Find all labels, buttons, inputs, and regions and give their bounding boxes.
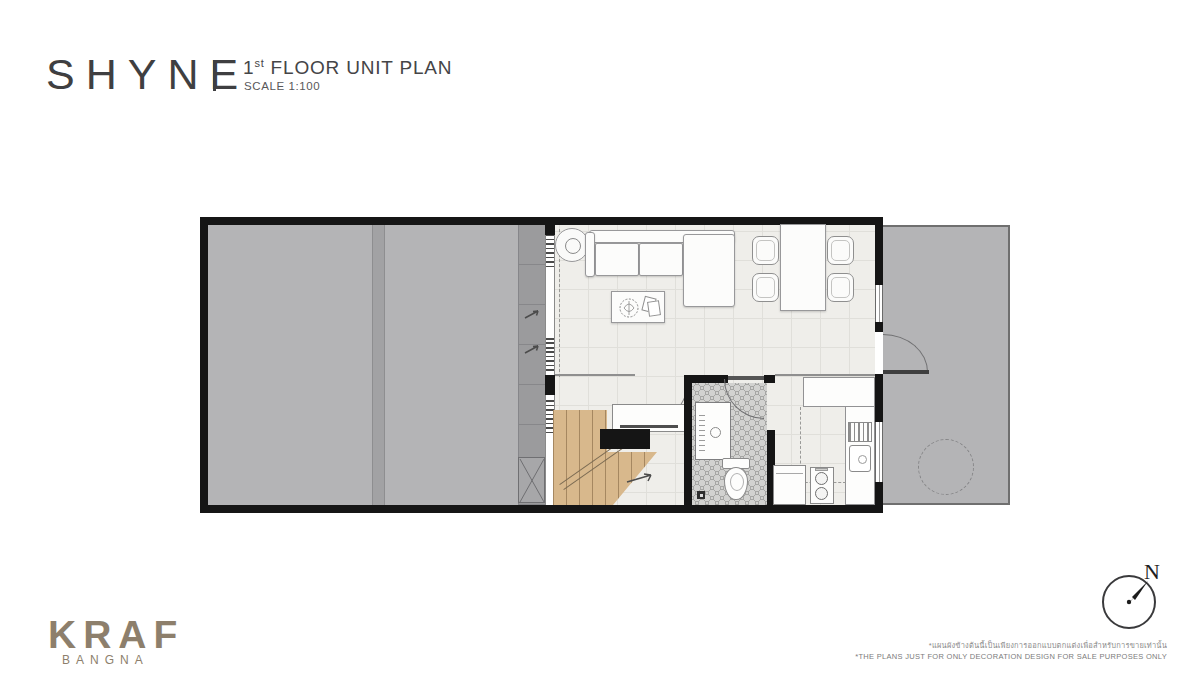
driveway-joint xyxy=(372,225,385,505)
bathroom-wall-left xyxy=(684,375,692,505)
stove-burner xyxy=(815,472,828,485)
bathroom-wall-top xyxy=(764,375,775,383)
table-book xyxy=(647,300,661,317)
disclaimer-english: *THE PLANS JUST FOR ONLY DECORATION DESI… xyxy=(855,652,1167,663)
sofa-cushion xyxy=(595,243,639,276)
window-right-upper xyxy=(875,285,883,322)
wall-right-segment xyxy=(875,374,883,422)
kitchen-counter-top xyxy=(803,377,875,407)
tree-dashed-circle xyxy=(918,439,974,495)
dining-chair xyxy=(752,273,779,302)
dining-chair xyxy=(752,236,779,265)
plan-title: 1st FLOOR UNIT PLAN xyxy=(243,57,452,79)
dining-table xyxy=(780,224,826,311)
slide-canvas: SHYNE 1st FLOOR UNIT PLAN SCALE 1:100 xyxy=(0,0,1200,686)
stair-wall-block xyxy=(600,429,650,449)
window-right-lower xyxy=(875,422,883,482)
disclaimer: *แผนผังข้างต้นนี้เป็นเพียงการออกแบบตกแต่… xyxy=(855,641,1167,663)
floor-lamp xyxy=(555,228,589,262)
refrigerator xyxy=(773,465,806,505)
wall-right-segment xyxy=(875,225,883,285)
kitchen-sink xyxy=(849,445,871,472)
project-name: SHYNE xyxy=(46,50,249,99)
floor-drain xyxy=(697,491,705,499)
window-frame-hatch xyxy=(546,399,554,433)
stove-control xyxy=(815,468,828,471)
sofa-chaise xyxy=(683,234,735,307)
north-label: N xyxy=(1144,559,1160,585)
cabinet-shelf-line xyxy=(620,425,678,428)
wall-bottom xyxy=(200,505,883,513)
walkway-gate xyxy=(518,457,545,503)
wall-segment xyxy=(545,375,555,395)
sofa-armrest xyxy=(585,232,595,277)
disclaimer-thai: *แผนผังข้างต้นนี้เป็นเพียงการออกแบบตกแต่… xyxy=(855,641,1167,652)
window-frame-hatch xyxy=(546,233,554,267)
floor-plan xyxy=(200,217,1010,513)
walkway-arrow-down xyxy=(522,342,542,356)
carport-area xyxy=(208,225,518,505)
brand-logo-subtext: BANGNA xyxy=(62,653,149,667)
sofa-cushion xyxy=(639,243,683,276)
wall-right-segment xyxy=(875,322,883,332)
wall-left xyxy=(200,217,208,513)
stove-burner xyxy=(815,487,828,500)
ordinal-suffix: st xyxy=(254,57,264,69)
hall-wall-line xyxy=(555,374,635,376)
dining-chair xyxy=(827,236,854,265)
header-separator xyxy=(213,60,216,91)
walkway-arrow-up xyxy=(522,307,542,321)
compass-center-dot xyxy=(1127,600,1131,604)
sink-drainboard xyxy=(848,422,872,442)
kitchen-boundary-line xyxy=(775,374,875,376)
window-frame-hatch xyxy=(546,337,554,371)
washbasin-vanity xyxy=(695,402,731,460)
bathroom-wall-top xyxy=(692,375,728,383)
dining-chair xyxy=(827,273,854,302)
wall-right-segment xyxy=(875,482,883,505)
brand-logo: KRAF xyxy=(48,613,184,657)
stair-direction-arrow xyxy=(625,469,657,487)
gate-swing-lines xyxy=(519,458,546,504)
scale-label: SCALE 1:100 xyxy=(244,80,320,92)
wall-segment xyxy=(545,225,555,235)
backyard-door-leaf xyxy=(883,370,929,374)
